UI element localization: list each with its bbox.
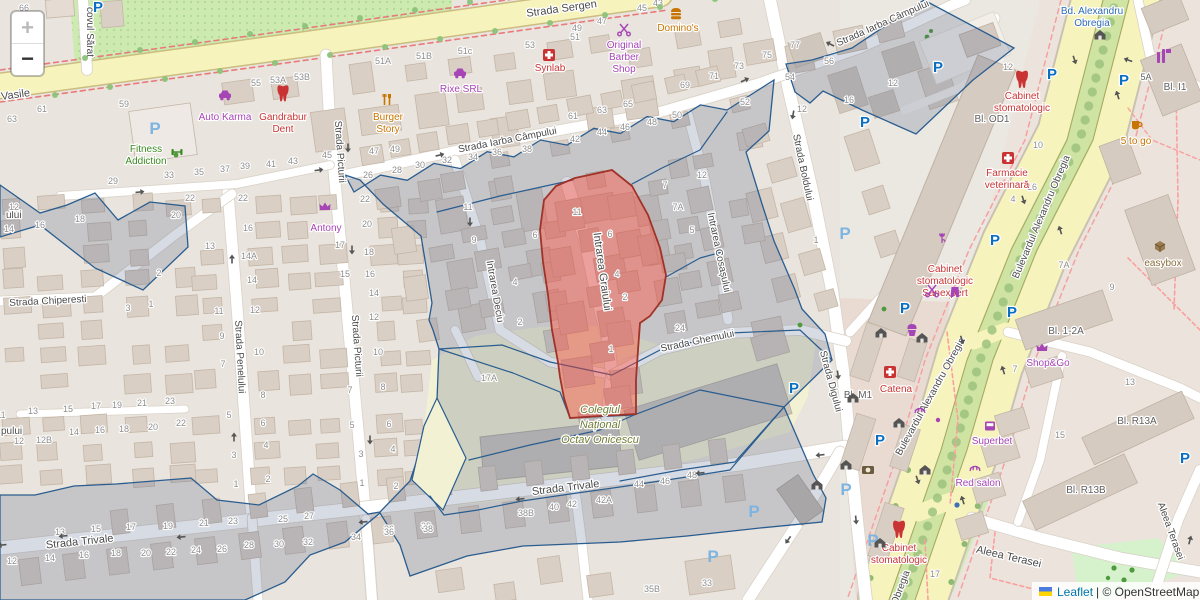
svg-text:32: 32 <box>442 155 452 165</box>
svg-text:14: 14 <box>69 427 79 437</box>
svg-text:Dent: Dent <box>272 124 293 135</box>
svg-text:12: 12 <box>14 436 24 446</box>
svg-text:18: 18 <box>119 424 129 434</box>
svg-text:51A: 51A <box>375 56 391 66</box>
svg-text:26: 26 <box>217 544 227 554</box>
svg-text:9: 9 <box>1109 282 1114 292</box>
svg-text:Bl. R13A: Bl. R13A <box>1117 416 1157 427</box>
svg-text:11: 11 <box>0 410 6 420</box>
svg-text:28: 28 <box>392 165 402 175</box>
svg-text:37: 37 <box>220 164 230 174</box>
svg-text:Bl. R13B: Bl. R13B <box>1066 485 1106 496</box>
svg-text:Bl. OD1: Bl. OD1 <box>974 114 1009 125</box>
svg-text:1: 1 <box>813 235 818 245</box>
svg-text:50: 50 <box>672 110 682 120</box>
svg-text:1: 1 <box>148 299 153 309</box>
svg-text:Shop&Go: Shop&Go <box>1026 358 1070 369</box>
svg-text:12B: 12B <box>36 435 52 445</box>
svg-text:46: 46 <box>620 122 630 132</box>
svg-text:46: 46 <box>660 476 670 486</box>
svg-text:35: 35 <box>194 167 204 177</box>
svg-text:36: 36 <box>492 147 502 157</box>
svg-text:14: 14 <box>45 553 55 563</box>
svg-text:34: 34 <box>351 532 361 542</box>
svg-text:P: P <box>748 502 759 521</box>
svg-text:P: P <box>1007 304 1017 321</box>
svg-text:51B: 51B <box>416 51 432 61</box>
svg-text:22: 22 <box>176 418 186 428</box>
svg-text:P: P <box>93 0 103 16</box>
svg-text:Obregia: Obregia <box>1074 18 1110 29</box>
svg-text:Synlab: Synlab <box>535 63 566 74</box>
svg-text:18: 18 <box>75 214 85 224</box>
svg-text:45: 45 <box>322 150 332 160</box>
svg-text:29: 29 <box>108 176 118 186</box>
svg-text:8: 8 <box>260 390 265 400</box>
svg-text:5: 5 <box>349 420 354 430</box>
svg-text:6: 6 <box>532 230 537 240</box>
svg-text:22: 22 <box>166 547 176 557</box>
svg-text:17A: 17A <box>481 373 497 383</box>
svg-text:4: 4 <box>614 269 619 279</box>
svg-text:P: P <box>860 114 870 131</box>
svg-text:52: 52 <box>740 97 750 107</box>
svg-text:3: 3 <box>125 303 130 313</box>
svg-text:17: 17 <box>930 569 940 579</box>
svg-text:8: 8 <box>380 382 385 392</box>
svg-text:7: 7 <box>220 359 225 369</box>
svg-text:6: 6 <box>607 229 612 239</box>
svg-text:22: 22 <box>238 193 248 203</box>
svg-text:16: 16 <box>365 269 375 279</box>
svg-text:22: 22 <box>185 193 195 203</box>
svg-text:15: 15 <box>340 269 350 279</box>
svg-text:12: 12 <box>9 202 19 212</box>
svg-text:30: 30 <box>415 160 425 170</box>
svg-text:12: 12 <box>369 312 379 322</box>
svg-text:stomatologic: stomatologic <box>917 276 973 287</box>
svg-text:41: 41 <box>266 159 276 169</box>
svg-text:61: 61 <box>568 111 578 121</box>
svg-text:16: 16 <box>95 425 105 435</box>
svg-text:33: 33 <box>702 578 712 588</box>
svg-text:42: 42 <box>567 499 577 509</box>
svg-text:56: 56 <box>824 56 834 66</box>
svg-text:Rixe SRL: Rixe SRL <box>440 84 483 95</box>
svg-text:Cabinet: Cabinet <box>1005 91 1040 102</box>
svg-text:5 to go: 5 to go <box>1121 136 1152 147</box>
svg-text:Farmacie: Farmacie <box>986 168 1028 179</box>
svg-text:39: 39 <box>240 161 250 171</box>
svg-text:51c: 51c <box>458 46 473 56</box>
svg-text:59: 59 <box>119 99 129 109</box>
svg-text:P: P <box>990 232 1000 249</box>
svg-text:P: P <box>1119 72 1129 89</box>
svg-text:1: 1 <box>359 478 364 488</box>
svg-text:38B: 38B <box>518 508 534 518</box>
svg-text:43: 43 <box>288 156 298 166</box>
svg-text:49: 49 <box>572 23 582 33</box>
svg-text:1: 1 <box>608 344 613 354</box>
svg-text:−: − <box>21 46 34 71</box>
svg-text:42A: 42A <box>596 495 612 505</box>
svg-text:26: 26 <box>363 170 373 180</box>
svg-text:55: 55 <box>251 78 261 88</box>
svg-text:Colegiul: Colegiul <box>580 404 620 416</box>
svg-text:14: 14 <box>4 224 14 234</box>
svg-text:40: 40 <box>549 502 559 512</box>
svg-text:6: 6 <box>260 418 265 428</box>
svg-text:Fitness: Fitness <box>130 144 162 155</box>
svg-text:24: 24 <box>675 323 685 333</box>
svg-text:63: 63 <box>7 114 17 124</box>
svg-text:65: 65 <box>623 99 633 109</box>
svg-text:77: 77 <box>790 40 800 50</box>
svg-text:Leaflet: Leaflet <box>1057 585 1094 599</box>
svg-text:45: 45 <box>637 3 647 13</box>
svg-text:Octav Onicescu: Octav Onicescu <box>561 434 639 446</box>
svg-text:17: 17 <box>335 240 345 250</box>
svg-text:20: 20 <box>171 210 181 220</box>
svg-text:P: P <box>1180 450 1190 467</box>
svg-text:12: 12 <box>697 170 707 180</box>
svg-text:17: 17 <box>126 522 136 532</box>
svg-text:Bd. Alexandru: Bd. Alexandru <box>1061 6 1123 17</box>
svg-text:42: 42 <box>570 134 580 144</box>
svg-text:7: 7 <box>1012 364 1017 374</box>
svg-text:44: 44 <box>634 479 644 489</box>
svg-text:12: 12 <box>797 104 807 114</box>
svg-text:53A: 53A <box>270 75 286 85</box>
svg-text:15: 15 <box>1055 430 1065 440</box>
svg-text:16: 16 <box>35 220 45 230</box>
svg-text:15: 15 <box>63 404 73 414</box>
svg-text:10: 10 <box>373 347 383 357</box>
svg-text:4: 4 <box>263 440 268 450</box>
svg-text:61: 61 <box>37 104 47 114</box>
svg-text:P: P <box>149 119 160 138</box>
svg-text:Shop: Shop <box>612 64 636 75</box>
svg-text:11: 11 <box>463 202 472 212</box>
svg-text:15: 15 <box>91 524 101 534</box>
svg-text:2: 2 <box>156 268 161 278</box>
svg-text:23: 23 <box>165 396 175 406</box>
svg-text:63: 63 <box>597 105 607 115</box>
svg-text:stomatologic: stomatologic <box>994 103 1050 114</box>
svg-text:75: 75 <box>762 50 772 60</box>
svg-text:12: 12 <box>1003 62 1013 72</box>
svg-text:P: P <box>1047 66 1057 83</box>
svg-text:30: 30 <box>274 539 284 549</box>
svg-text:P: P <box>840 480 851 499</box>
svg-text:Domino's: Domino's <box>657 23 698 34</box>
svg-text:17: 17 <box>91 401 101 411</box>
svg-text:Bl. I1: Bl. I1 <box>1164 82 1187 93</box>
svg-text:3: 3 <box>231 450 236 460</box>
svg-text:24: 24 <box>191 545 201 555</box>
svg-text:11: 11 <box>214 306 223 316</box>
svg-text:stomatologic: stomatologic <box>871 555 927 566</box>
svg-text:9: 9 <box>219 331 224 341</box>
svg-text:73: 73 <box>734 61 744 71</box>
svg-text:4: 4 <box>1010 194 1015 204</box>
svg-text:Gandrabur: Gandrabur <box>259 112 307 123</box>
svg-text:53B: 53B <box>294 72 310 82</box>
svg-text:44: 44 <box>597 127 607 137</box>
svg-text:27: 27 <box>304 511 314 521</box>
svg-text:7A: 7A <box>1058 260 1069 270</box>
svg-text:Bl. 1-2A: Bl. 1-2A <box>1048 326 1084 337</box>
svg-text:48: 48 <box>687 470 697 480</box>
svg-text:3: 3 <box>358 449 363 459</box>
svg-text:Red salon: Red salon <box>955 478 1000 489</box>
svg-text:7: 7 <box>347 385 352 395</box>
svg-text:Auto Karma: Auto Karma <box>199 112 252 123</box>
svg-text:35B: 35B <box>644 584 660 594</box>
svg-text:71: 71 <box>709 71 719 81</box>
svg-text:18: 18 <box>111 548 121 558</box>
svg-text:32: 32 <box>303 537 313 547</box>
svg-text:9: 9 <box>471 235 476 245</box>
svg-text:16: 16 <box>844 95 854 105</box>
svg-text:| © OpenStreetMap: | © OpenStreetMap <box>1096 585 1200 599</box>
svg-text:Național: Național <box>580 419 621 431</box>
svg-text:4: 4 <box>512 277 517 287</box>
svg-text:10: 10 <box>1033 140 1043 150</box>
svg-text:2: 2 <box>393 481 398 491</box>
svg-text:6: 6 <box>386 419 391 429</box>
svg-text:18: 18 <box>364 247 374 257</box>
svg-text:51: 51 <box>570 32 580 42</box>
svg-text:14: 14 <box>369 288 379 298</box>
svg-text:21: 21 <box>199 518 209 528</box>
svg-text:53: 53 <box>525 40 535 50</box>
svg-text:13: 13 <box>1125 377 1135 387</box>
svg-text:5A: 5A <box>1140 72 1151 82</box>
svg-text:Story: Story <box>376 124 399 135</box>
svg-text:12: 12 <box>7 556 17 566</box>
svg-text:69: 69 <box>680 80 690 90</box>
svg-text:54: 54 <box>785 72 795 82</box>
svg-text:38: 38 <box>423 524 433 534</box>
svg-text:easybox: easybox <box>1144 258 1181 269</box>
svg-text:P: P <box>839 224 850 243</box>
svg-text:Cabinet: Cabinet <box>882 543 917 554</box>
svg-text:Burger: Burger <box>373 112 404 123</box>
svg-text:19: 19 <box>163 521 173 531</box>
svg-text:13: 13 <box>205 241 215 251</box>
svg-text:Original: Original <box>607 40 641 51</box>
svg-text:P: P <box>707 547 718 566</box>
svg-text:12: 12 <box>250 305 260 315</box>
svg-text:38: 38 <box>522 144 532 154</box>
svg-text:34: 34 <box>468 152 478 162</box>
svg-text:Superbet: Superbet <box>972 436 1013 447</box>
svg-text:21: 21 <box>137 398 147 408</box>
svg-text:49: 49 <box>390 144 400 154</box>
svg-text:+: + <box>21 15 34 40</box>
svg-text:47: 47 <box>369 146 379 156</box>
svg-text:veterinară: veterinară <box>985 180 1030 191</box>
svg-text:20: 20 <box>362 219 372 229</box>
svg-text:7A: 7A <box>672 202 683 212</box>
svg-text:28: 28 <box>244 540 254 550</box>
svg-text:12: 12 <box>888 78 898 88</box>
svg-text:2: 2 <box>265 474 270 484</box>
svg-text:16: 16 <box>79 550 89 560</box>
svg-text:11: 11 <box>572 207 581 217</box>
svg-text:13: 13 <box>28 406 38 416</box>
svg-text:P: P <box>789 380 799 397</box>
svg-text:Catena: Catena <box>880 384 913 395</box>
svg-text:5: 5 <box>689 225 694 235</box>
svg-text:10: 10 <box>254 347 264 357</box>
svg-text:22: 22 <box>360 194 370 204</box>
svg-text:25: 25 <box>278 514 288 524</box>
svg-text:Barber: Barber <box>609 52 640 63</box>
svg-text:19: 19 <box>112 400 122 410</box>
svg-text:Cabinet: Cabinet <box>928 264 963 275</box>
svg-text:7: 7 <box>662 180 667 190</box>
svg-text:20: 20 <box>141 548 151 558</box>
svg-text:48: 48 <box>647 117 657 127</box>
svg-text:36: 36 <box>384 527 394 537</box>
svg-text:2: 2 <box>517 317 522 327</box>
svg-text:Addiction: Addiction <box>125 156 166 167</box>
svg-text:14A: 14A <box>241 251 257 261</box>
svg-text:Antony: Antony <box>310 223 341 234</box>
svg-text:P: P <box>875 432 885 449</box>
svg-text:5: 5 <box>226 410 231 420</box>
svg-text:4: 4 <box>390 444 395 454</box>
svg-text:16: 16 <box>243 223 253 233</box>
svg-text:P: P <box>933 59 943 76</box>
svg-text:1: 1 <box>233 479 238 489</box>
svg-text:23: 23 <box>228 516 238 526</box>
svg-text:14: 14 <box>247 275 257 285</box>
svg-text:2: 2 <box>622 292 627 302</box>
svg-text:20: 20 <box>148 422 158 432</box>
svg-text:P: P <box>900 300 910 317</box>
svg-text:33: 33 <box>164 170 174 180</box>
